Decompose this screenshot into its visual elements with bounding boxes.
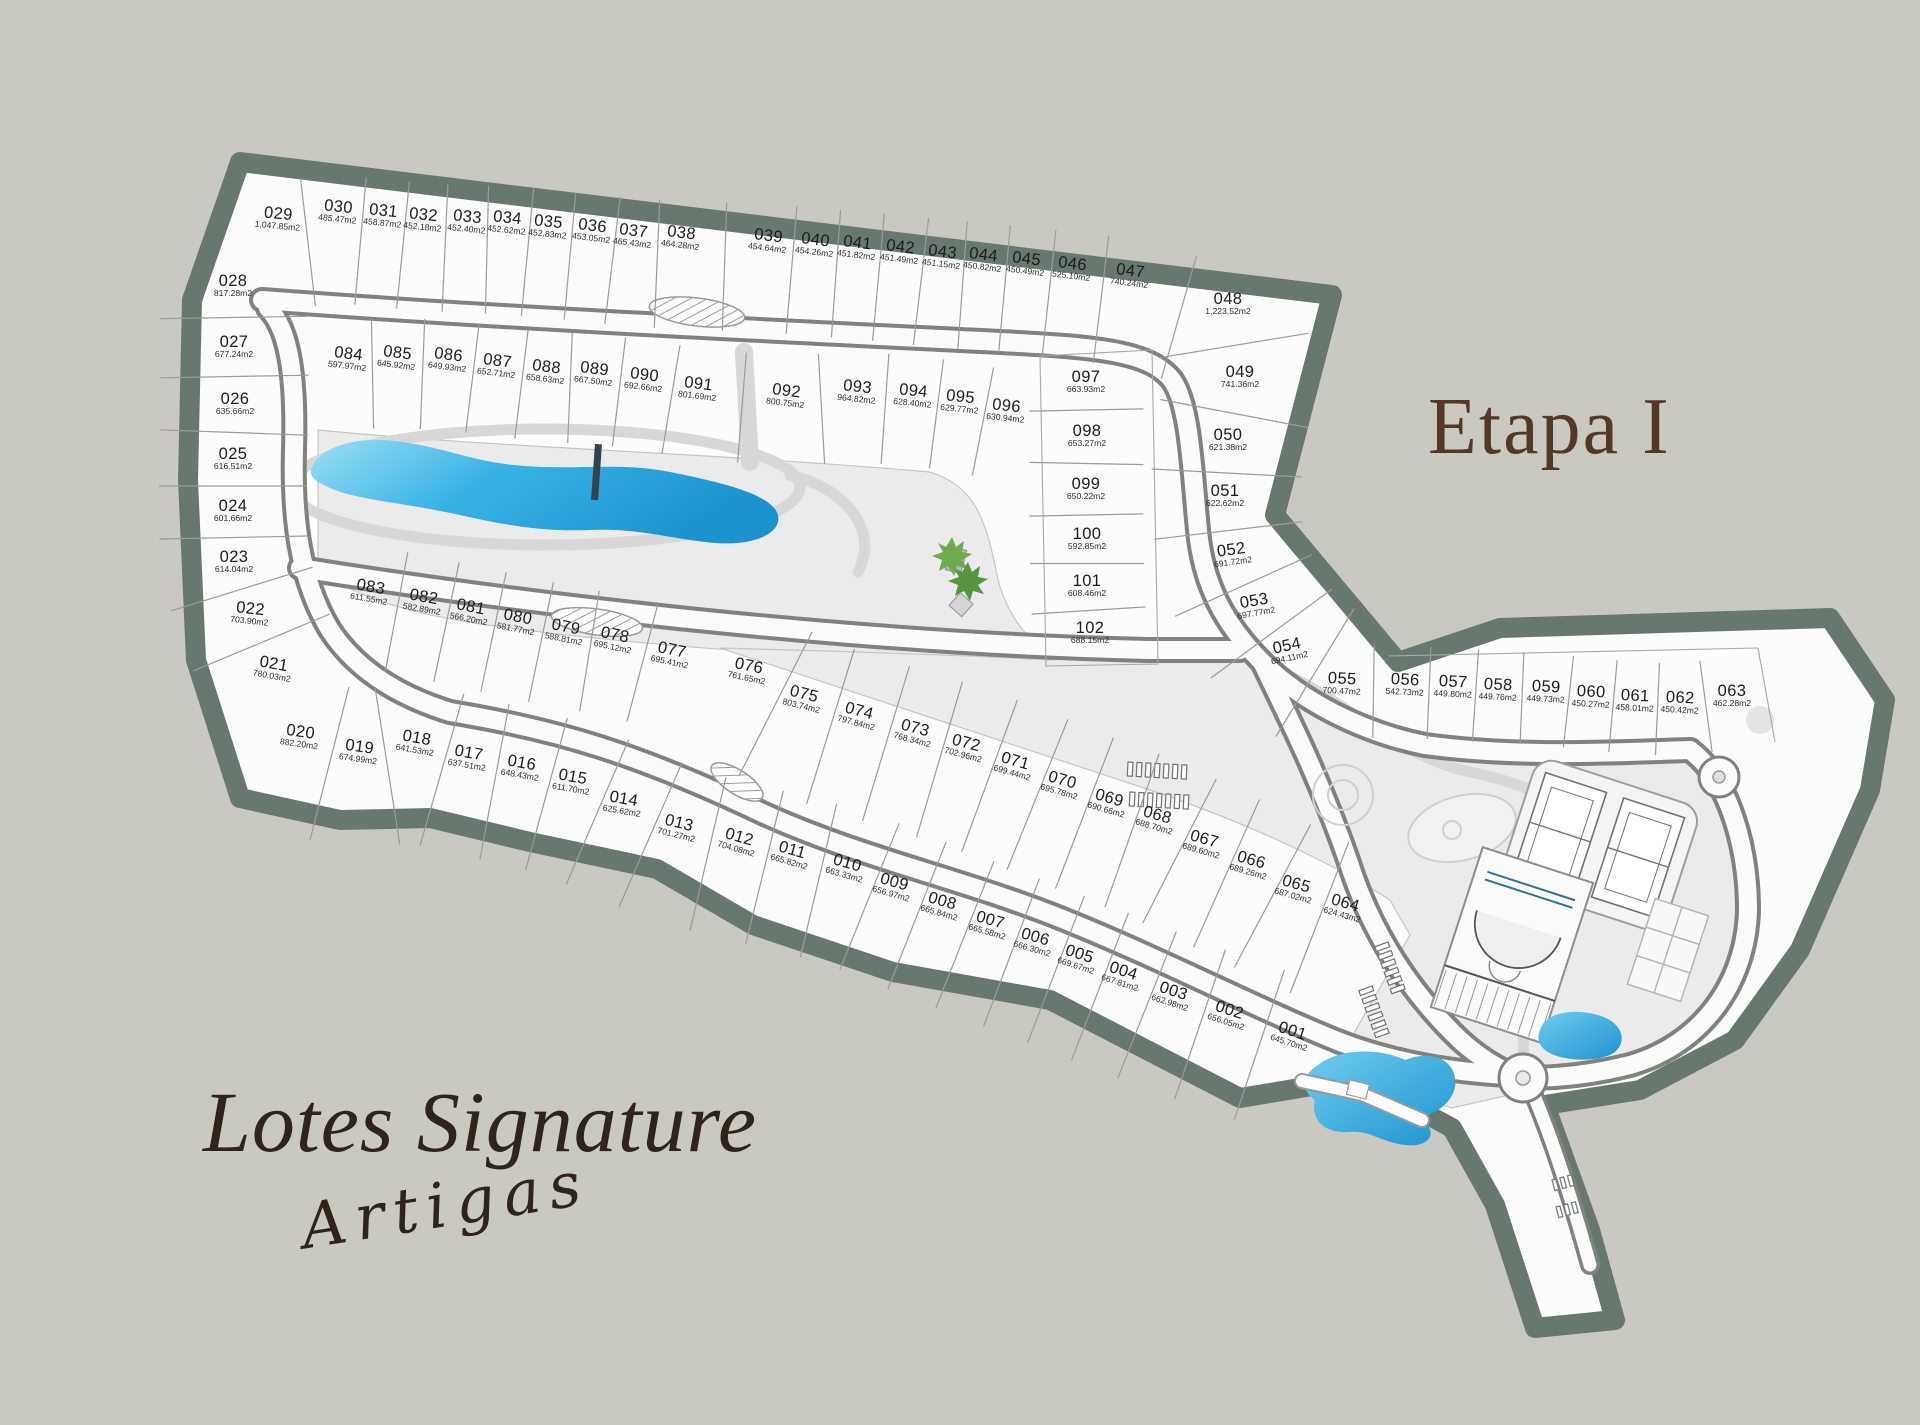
- lot-076: 076761.65m2: [727, 655, 769, 686]
- lot-034: 034452.62m2: [487, 209, 528, 237]
- lot-number: 001: [1272, 1018, 1313, 1044]
- lot-014: 014625.62m2: [602, 789, 644, 819]
- lot-number: 032: [404, 206, 444, 225]
- lot-area: 635.66m2: [216, 407, 254, 416]
- lot-099: 099650.22m2: [1067, 477, 1105, 501]
- lot-area: 704.08m2: [716, 839, 755, 858]
- lot-area: 621.38m2: [1209, 443, 1247, 452]
- lot-013: 013701.27m2: [657, 812, 700, 845]
- lot-number: 064: [1325, 891, 1366, 916]
- lot-area: 622.62m2: [1206, 499, 1244, 508]
- lot-068: 068688.70m2: [1134, 803, 1177, 837]
- lot-area: 667.50m2: [574, 374, 613, 388]
- lot-area: 666.30m2: [1012, 939, 1051, 958]
- lot-area: 616.51m2: [214, 462, 252, 471]
- lot-area: 665.58m2: [967, 922, 1006, 941]
- lot-042: 042451.49m2: [880, 238, 921, 266]
- lot-029: 0291,047.85m2: [254, 205, 301, 233]
- lot-area: 450.49m2: [1006, 264, 1045, 278]
- lot-051: 051622.62m2: [1206, 484, 1244, 508]
- lot-area: 641.53m2: [395, 742, 434, 758]
- lot-082: 082582.89m2: [402, 587, 444, 617]
- lot-number: 011: [772, 838, 813, 863]
- lot-084: 084597.97m2: [328, 345, 369, 373]
- lot-area: 566.20m2: [449, 611, 488, 627]
- lot-023: 023614.04m2: [215, 550, 253, 574]
- lot-number: 025: [214, 447, 252, 462]
- lot-area: 637.51m2: [447, 757, 486, 773]
- lot-number: 027: [215, 335, 253, 350]
- lot-022: 022703.90m2: [230, 600, 271, 628]
- lot-015: 015611.70m2: [551, 767, 592, 797]
- lot-number: 051: [1206, 484, 1244, 499]
- lot-004: 004667.81m2: [1100, 958, 1144, 993]
- lot-081: 081566.20m2: [449, 596, 491, 627]
- lot-062: 062450.42m2: [1660, 690, 1699, 716]
- lot-area: 800.75m2: [766, 396, 805, 410]
- lot-area: 542.73m2: [1385, 687, 1424, 698]
- lot-area: 687.02m2: [1273, 886, 1312, 905]
- lot-number: 013: [659, 812, 700, 836]
- lot-area: 689.26m2: [1228, 862, 1267, 881]
- lot-area: 645.92m2: [377, 358, 416, 372]
- lot-035: 035452.83m2: [528, 213, 569, 241]
- lot-009: 009656.97m2: [871, 870, 914, 904]
- lot-012: 012704.08m2: [716, 825, 759, 859]
- lot-area: 695.12m2: [593, 639, 632, 656]
- lot-area: 662.98m2: [1150, 993, 1189, 1013]
- lot-number: 019: [340, 737, 380, 757]
- lot-006: 006666.30m2: [1012, 925, 1055, 959]
- lot-area: 690.66m2: [1086, 800, 1125, 819]
- lot-number: 040: [796, 231, 836, 251]
- lot-number: 102: [1071, 621, 1109, 636]
- lot-number: 038: [662, 224, 702, 244]
- site-map: 001645.70m2002656.05m2003662.98m2004667.…: [0, 0, 1920, 1425]
- lot-101: 101608.46m2: [1068, 574, 1106, 598]
- lot-area: 450.42m2: [1660, 705, 1699, 716]
- lot-056: 056542.73m2: [1385, 672, 1424, 698]
- lot-area: 650.22m2: [1067, 492, 1105, 501]
- lot-area: 701.27m2: [657, 826, 696, 844]
- lot-026: 026635.66m2: [216, 392, 254, 416]
- lot-area: 1,047.85m2: [254, 220, 300, 233]
- lot-052: 052691.72m2: [1211, 540, 1252, 569]
- lot-area: 700.47m2: [1322, 686, 1361, 697]
- lot-number: 069: [1089, 786, 1130, 811]
- lot-083: 083611.55m2: [349, 577, 390, 607]
- lot-area: 697.77m2: [1237, 605, 1276, 621]
- lot-102: 102688.15m2: [1071, 621, 1109, 645]
- lot-007: 007665.58m2: [967, 908, 1010, 942]
- lot-number: 059: [1527, 679, 1566, 696]
- lot-001: 001645.70m2: [1269, 1018, 1313, 1053]
- lot-number: 096: [987, 397, 1027, 416]
- lot-area: 665.84m2: [919, 903, 958, 922]
- lot-number: 065: [1276, 872, 1317, 897]
- lot-011: 011665.82m2: [769, 838, 812, 872]
- lot-033: 033452.40m2: [447, 208, 488, 236]
- lot-025: 025616.51m2: [214, 447, 252, 471]
- lot-area: 451.82m2: [837, 248, 876, 262]
- lot-091: 091801.69m2: [678, 375, 719, 403]
- lot-037: 037465.43m2: [613, 222, 654, 250]
- lot-area: 674.99m2: [338, 752, 377, 766]
- lot-area: 608.46m2: [1068, 589, 1106, 598]
- lot-area: 656.97m2: [871, 884, 910, 903]
- lot-005: 005669.67m2: [1056, 941, 1100, 976]
- lot-number: 034: [488, 209, 528, 228]
- lot-044: 044450.82m2: [963, 246, 1004, 274]
- lot-number: 015: [553, 767, 593, 788]
- lot-010: 010663.33m2: [824, 851, 867, 885]
- lot-017: 017637.51m2: [447, 743, 489, 773]
- lot-059: 059449.73m2: [1526, 679, 1565, 705]
- lot-area: 449.76m2: [1478, 692, 1517, 703]
- lot-088: 088658.63m2: [526, 358, 567, 386]
- lot-area: 582.89m2: [402, 601, 441, 617]
- lot-area: 625.62m2: [602, 803, 641, 819]
- lot-028: 028817.28m2: [214, 274, 252, 298]
- lot-054: 054694.11m2: [1267, 635, 1309, 666]
- lot-number: 075: [784, 683, 825, 707]
- lot-061: 061458.01m2: [1615, 688, 1654, 714]
- lot-008: 008665.84m2: [919, 889, 962, 923]
- lot-number: 092: [767, 382, 807, 402]
- lot-area: 882.20m2: [279, 737, 318, 751]
- lot-085: 085645.92m2: [377, 344, 418, 372]
- lot-number: 090: [625, 366, 665, 386]
- lot-016: 016648.43m2: [500, 753, 542, 783]
- lot-063: 063462.28m2: [1713, 684, 1751, 708]
- lot-number: 098: [1068, 424, 1106, 439]
- lot-area: 691.72m2: [1213, 555, 1252, 569]
- lot-066: 066689.26m2: [1228, 848, 1271, 882]
- lot-070: 070695.78m2: [1039, 768, 1082, 802]
- lot-area: 451.15m2: [922, 257, 961, 271]
- lot-048: 0481,223.52m2: [1205, 292, 1250, 316]
- lot-number: 012: [719, 825, 760, 850]
- lot-number: 067: [1184, 827, 1225, 852]
- stage-label: Etapa I: [1428, 382, 1671, 473]
- lot-area: 761.65m2: [727, 670, 766, 687]
- lot-number: 006: [1015, 925, 1056, 950]
- lot-080: 080581.77m2: [496, 606, 538, 637]
- lot-number: 085: [378, 344, 418, 364]
- lot-area: 458.01m2: [1615, 703, 1654, 714]
- lot-area: 465.43m2: [613, 236, 652, 250]
- lot-area: 624.43m2: [1322, 905, 1361, 924]
- lot-area: 677.24m2: [215, 350, 253, 359]
- lot-number: 086: [429, 346, 469, 366]
- lot-number: 101: [1068, 574, 1106, 589]
- lot-area: 629.77m2: [940, 403, 979, 416]
- lot-number: 031: [364, 202, 404, 221]
- lot-area: 592.85m2: [1068, 542, 1106, 551]
- lot-number: 007: [970, 908, 1011, 933]
- lot-number: 100: [1068, 527, 1106, 542]
- lot-number: 043: [923, 243, 963, 263]
- lot-area: 663.93m2: [1067, 385, 1105, 394]
- lot-073: 073768.34m2: [892, 716, 935, 749]
- lot-number: 097: [1067, 370, 1105, 385]
- lot-area: 692.66m2: [624, 380, 663, 394]
- lot-065: 065687.02m2: [1273, 872, 1316, 906]
- lot-number: 041: [838, 234, 878, 254]
- lot-064: 064624.43m2: [1322, 891, 1365, 925]
- lot-number: 068: [1137, 803, 1178, 828]
- lot-077: 077695.41m2: [650, 639, 692, 670]
- lot-area: 656.05m2: [1206, 1012, 1245, 1032]
- lot-area: 581.77m2: [496, 621, 535, 637]
- lot-number: 042: [881, 238, 921, 258]
- lot-number: 023: [215, 550, 253, 565]
- lot-area: 628.40m2: [893, 397, 932, 410]
- lot-087: 087652.71m2: [477, 352, 518, 380]
- lot-number: 079: [546, 616, 586, 638]
- lot-area: 803.74m2: [782, 697, 821, 715]
- lot-area: 740.24m2: [1110, 276, 1149, 290]
- lot-number: 022: [231, 600, 271, 619]
- lot-area: 630.94m2: [986, 412, 1025, 425]
- lot-100: 100592.85m2: [1068, 527, 1106, 551]
- lot-area: 653.27m2: [1068, 439, 1106, 448]
- lot-area: 452.83m2: [528, 228, 567, 241]
- lot-046: 046525.10m2: [1052, 255, 1093, 283]
- lot-number: 078: [595, 624, 636, 647]
- lot-area: 449.80m2: [1433, 689, 1472, 700]
- lot-number: 037: [614, 222, 654, 242]
- lot-number: 014: [604, 789, 644, 810]
- lot-area: 694.11m2: [1270, 650, 1309, 667]
- lot-number: 088: [527, 358, 567, 378]
- lot-096: 096630.94m2: [986, 397, 1027, 425]
- lot-area: 453.05m2: [572, 231, 611, 245]
- lot-094: 094628.40m2: [893, 382, 934, 410]
- lot-area: 741.36m2: [1221, 380, 1259, 389]
- lot-086: 086649.93m2: [428, 346, 469, 374]
- lot-area: 658.63m2: [526, 372, 565, 386]
- lot-number: 062: [1661, 690, 1700, 707]
- lot-079: 079588.81m2: [544, 616, 586, 647]
- lot-number: 053: [1234, 591, 1274, 612]
- lot-area: 458.87m2: [363, 217, 402, 230]
- lot-021: 021780.03m2: [252, 654, 294, 684]
- lot-067: 067689.60m2: [1181, 827, 1224, 861]
- lot-labels: 001645.70m2002656.05m2003662.98m2004667.…: [0, 0, 1920, 1425]
- lot-number: 028: [214, 274, 252, 289]
- lot-area: 464.28m2: [661, 238, 700, 252]
- lot-number: 063: [1713, 684, 1751, 699]
- lot-area: 801.69m2: [678, 389, 717, 403]
- lot-number: 076: [729, 655, 770, 678]
- lot-number: 099: [1067, 477, 1105, 492]
- lot-area: 797.84m2: [836, 714, 875, 733]
- lot-number: 033: [448, 208, 488, 227]
- lot-number: 055: [1323, 671, 1362, 688]
- lot-020: 020882.20m2: [279, 722, 320, 751]
- lot-number: 066: [1231, 848, 1272, 873]
- lot-area: 451.49m2: [880, 252, 919, 266]
- lot-area: 649.93m2: [428, 360, 467, 374]
- lot-078: 078695.12m2: [593, 624, 635, 655]
- lot-area: 964.82m2: [837, 393, 876, 406]
- lot-area: 667.81m2: [1100, 973, 1139, 993]
- lot-number: 009: [874, 870, 915, 895]
- lot-area: 689.60m2: [1181, 841, 1220, 860]
- lot-036: 036453.05m2: [572, 217, 613, 245]
- lot-number: 044: [964, 246, 1004, 266]
- lot-area: 450.27m2: [1571, 699, 1610, 710]
- lot-number: 050: [1209, 428, 1247, 443]
- lot-area: 1,223.52m2: [1205, 307, 1250, 316]
- lot-018: 018641.53m2: [395, 728, 437, 758]
- lot-area: 703.90m2: [230, 615, 269, 628]
- lot-area: 665.82m2: [769, 852, 808, 871]
- lot-074: 074797.84m2: [836, 699, 879, 732]
- lot-number: 005: [1059, 941, 1100, 967]
- lot-030: 030485.47m2: [318, 198, 359, 226]
- lot-number: 070: [1042, 768, 1083, 793]
- lot-number: 029: [255, 205, 302, 224]
- lot-number: 048: [1205, 292, 1250, 307]
- lot-043: 043451.15m2: [922, 243, 963, 271]
- lot-number: 061: [1616, 688, 1655, 705]
- lot-number: 008: [922, 889, 963, 914]
- lot-098: 098653.27m2: [1068, 424, 1106, 448]
- lot-097: 097663.93m2: [1067, 370, 1105, 394]
- lot-area: 695.78m2: [1039, 782, 1078, 801]
- lot-071: 071699.44m2: [992, 749, 1035, 783]
- lot-area: 462.28m2: [1713, 699, 1751, 708]
- lot-area: 452.40m2: [447, 223, 486, 236]
- lot-number: 054: [1267, 635, 1307, 657]
- lot-number: 045: [1007, 250, 1047, 270]
- lot-number: 093: [838, 378, 878, 397]
- lot-number: 016: [502, 753, 542, 774]
- lot-area: 452.18m2: [403, 221, 442, 234]
- lot-058: 058449.76m2: [1478, 677, 1517, 703]
- lot-041: 041451.82m2: [837, 234, 878, 262]
- lot-number: 060: [1572, 684, 1611, 701]
- lot-area: 688.15m2: [1071, 636, 1109, 645]
- lot-number: 082: [404, 587, 444, 608]
- lot-number: 018: [397, 728, 437, 749]
- project-title: Lotes Signature: [203, 1072, 757, 1172]
- lot-number: 071: [995, 749, 1036, 774]
- lot-number: 077: [652, 639, 693, 662]
- lot-number: 073: [895, 716, 936, 740]
- lot-area: 688.70m2: [1134, 817, 1173, 836]
- lot-060: 060450.27m2: [1571, 684, 1610, 710]
- lot-069: 069690.66m2: [1086, 786, 1129, 820]
- lot-number: 058: [1479, 677, 1518, 694]
- lot-089: 089667.50m2: [574, 360, 615, 388]
- lot-072: 072702.96m2: [943, 731, 986, 764]
- lot-049: 049741.36m2: [1221, 365, 1259, 389]
- lot-area: 611.70m2: [551, 781, 590, 796]
- lot-002: 002656.05m2: [1206, 997, 1250, 1032]
- lot-number: 080: [498, 606, 538, 628]
- lot-number: 081: [451, 596, 491, 618]
- lot-019: 019674.99m2: [338, 737, 379, 766]
- lot-area: 525.10m2: [1052, 269, 1091, 283]
- lot-area: 614.04m2: [215, 565, 253, 574]
- lot-003: 003662.98m2: [1150, 978, 1194, 1013]
- lot-032: 032452.18m2: [403, 206, 444, 234]
- lot-number: 002: [1209, 997, 1250, 1023]
- lot-053: 053697.77m2: [1234, 591, 1276, 621]
- lot-area: 611.55m2: [349, 591, 388, 606]
- lot-area: 597.97m2: [328, 359, 367, 373]
- lot-027: 027677.24m2: [215, 335, 253, 359]
- lot-045: 045450.49m2: [1006, 250, 1047, 278]
- lot-area: 695.41m2: [650, 654, 689, 671]
- lot-number: 010: [827, 851, 868, 876]
- lot-area: 450.82m2: [963, 260, 1002, 274]
- lot-number: 056: [1386, 672, 1425, 689]
- lot-number: 039: [749, 227, 789, 247]
- lot-number: 020: [281, 722, 321, 742]
- lot-095: 095629.77m2: [940, 388, 981, 416]
- lot-number: 003: [1153, 978, 1194, 1004]
- lot-093: 093964.82m2: [837, 378, 878, 406]
- lot-number: 094: [894, 382, 934, 401]
- lot-area: 454.26m2: [795, 245, 834, 259]
- lot-number: 084: [329, 345, 369, 365]
- lot-055: 055700.47m2: [1322, 671, 1361, 697]
- lot-number: 026: [216, 392, 254, 407]
- lot-number: 035: [529, 213, 569, 232]
- lot-area: 699.44m2: [992, 763, 1031, 782]
- lot-050: 050621.38m2: [1209, 428, 1247, 452]
- lot-area: 454.64m2: [748, 241, 787, 255]
- lot-number: 072: [946, 731, 987, 755]
- lot-number: 021: [254, 654, 294, 675]
- lot-area: 702.96m2: [943, 746, 982, 765]
- lot-number: 036: [573, 217, 613, 237]
- lot-031: 031458.87m2: [363, 202, 404, 230]
- lot-057: 057449.80m2: [1433, 674, 1472, 700]
- lot-number: 049: [1221, 365, 1259, 380]
- lot-024: 024601.66m2: [214, 499, 252, 523]
- lot-number: 083: [351, 577, 391, 598]
- lot-047: 047740.24m2: [1110, 262, 1151, 290]
- lot-area: 449.73m2: [1526, 694, 1565, 705]
- lot-area: 485.47m2: [318, 213, 357, 226]
- lot-039: 039454.64m2: [748, 227, 789, 255]
- lot-area: 452.62m2: [487, 224, 526, 237]
- lot-number: 046: [1053, 255, 1093, 275]
- lot-number: 091: [679, 375, 719, 395]
- lot-040: 040454.26m2: [795, 231, 836, 259]
- lot-number: 057: [1434, 674, 1473, 691]
- lot-number: 074: [839, 699, 880, 723]
- lot-number: 047: [1111, 262, 1151, 282]
- lot-number: 089: [575, 360, 615, 380]
- lot-number: 017: [449, 743, 489, 764]
- lot-area: 652.71m2: [477, 366, 516, 380]
- lot-number: 087: [478, 352, 518, 372]
- lot-number: 052: [1211, 540, 1251, 560]
- lot-area: 648.43m2: [500, 767, 539, 783]
- lot-075: 075803.74m2: [782, 683, 825, 716]
- lot-number: 030: [319, 198, 359, 217]
- lot-number: 024: [214, 499, 252, 514]
- lot-area: 669.67m2: [1056, 956, 1095, 976]
- lot-area: 601.66m2: [214, 514, 252, 523]
- lot-090: 090692.66m2: [624, 366, 665, 394]
